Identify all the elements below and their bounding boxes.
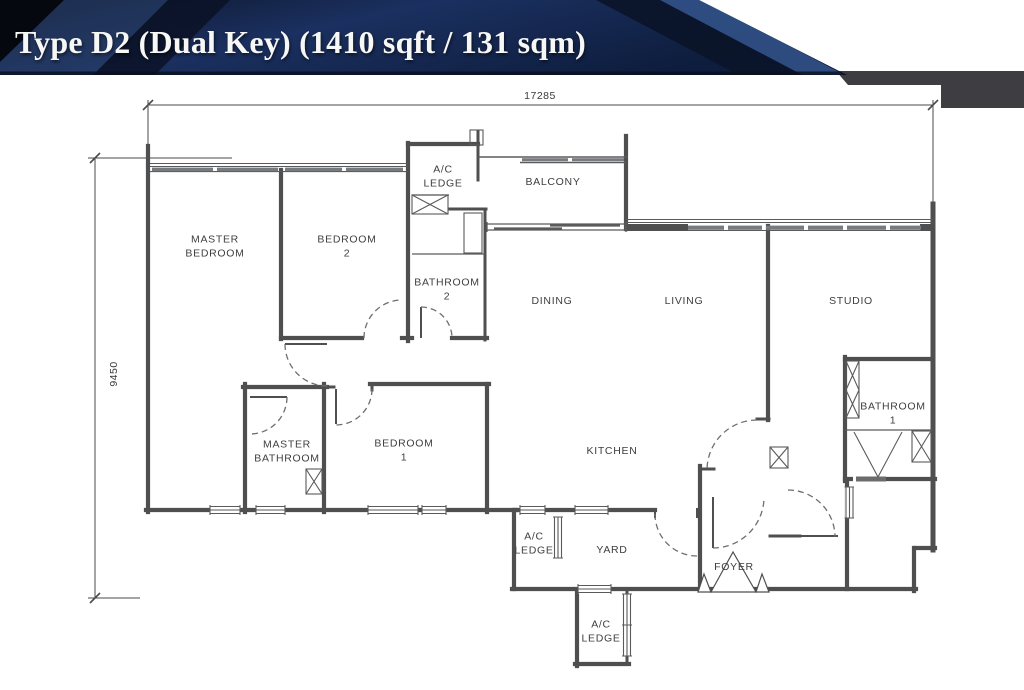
- room-label-living: LIVING: [665, 295, 704, 309]
- floor-plan-drawing: [0, 0, 1024, 690]
- room-label-ac-ledge-bottom: A/C LEDGE: [581, 618, 620, 645]
- room-label-master-bathroom: MASTER BATHROOM: [254, 438, 320, 465]
- corner-gray-shape: [836, 71, 1024, 108]
- room-label-ac-ledge-top: A/C LEDGE: [423, 163, 462, 190]
- plan-title: Type D2 (Dual Key) (1410 sqft / 131 sqm): [15, 24, 586, 61]
- room-label-bathroom-2: BATHROOM 2: [414, 276, 480, 303]
- room-label-bedroom-1: BEDROOM 1: [374, 437, 433, 464]
- room-label-yard: YARD: [596, 544, 627, 558]
- sliding-door-leaf: [856, 477, 886, 482]
- dimension-height-label: 9450: [108, 361, 120, 386]
- room-label-bathroom-1: BATHROOM 1: [860, 400, 926, 427]
- room-label-foyer: FOYER: [714, 561, 754, 575]
- walls: [146, 132, 935, 666]
- room-label-dining: DINING: [532, 295, 573, 309]
- floor-plan-page: Type D2 (Dual Key) (1410 sqft / 131 sqm)…: [0, 0, 1024, 690]
- room-label-ac-ledge-side: A/C LEDGE: [514, 530, 553, 557]
- room-label-balcony: BALCONY: [525, 176, 580, 190]
- room-label-bedroom-2: BEDROOM 2: [317, 233, 376, 260]
- window-pane-bars: [152, 168, 403, 172]
- room-label-kitchen: KITCHEN: [587, 445, 638, 459]
- room-label-master-bedroom: MASTER BEDROOM: [185, 233, 244, 260]
- dimension-width-label: 17285: [524, 90, 556, 102]
- window-symbols: [150, 157, 933, 656]
- room-label-studio: STUDIO: [829, 295, 873, 309]
